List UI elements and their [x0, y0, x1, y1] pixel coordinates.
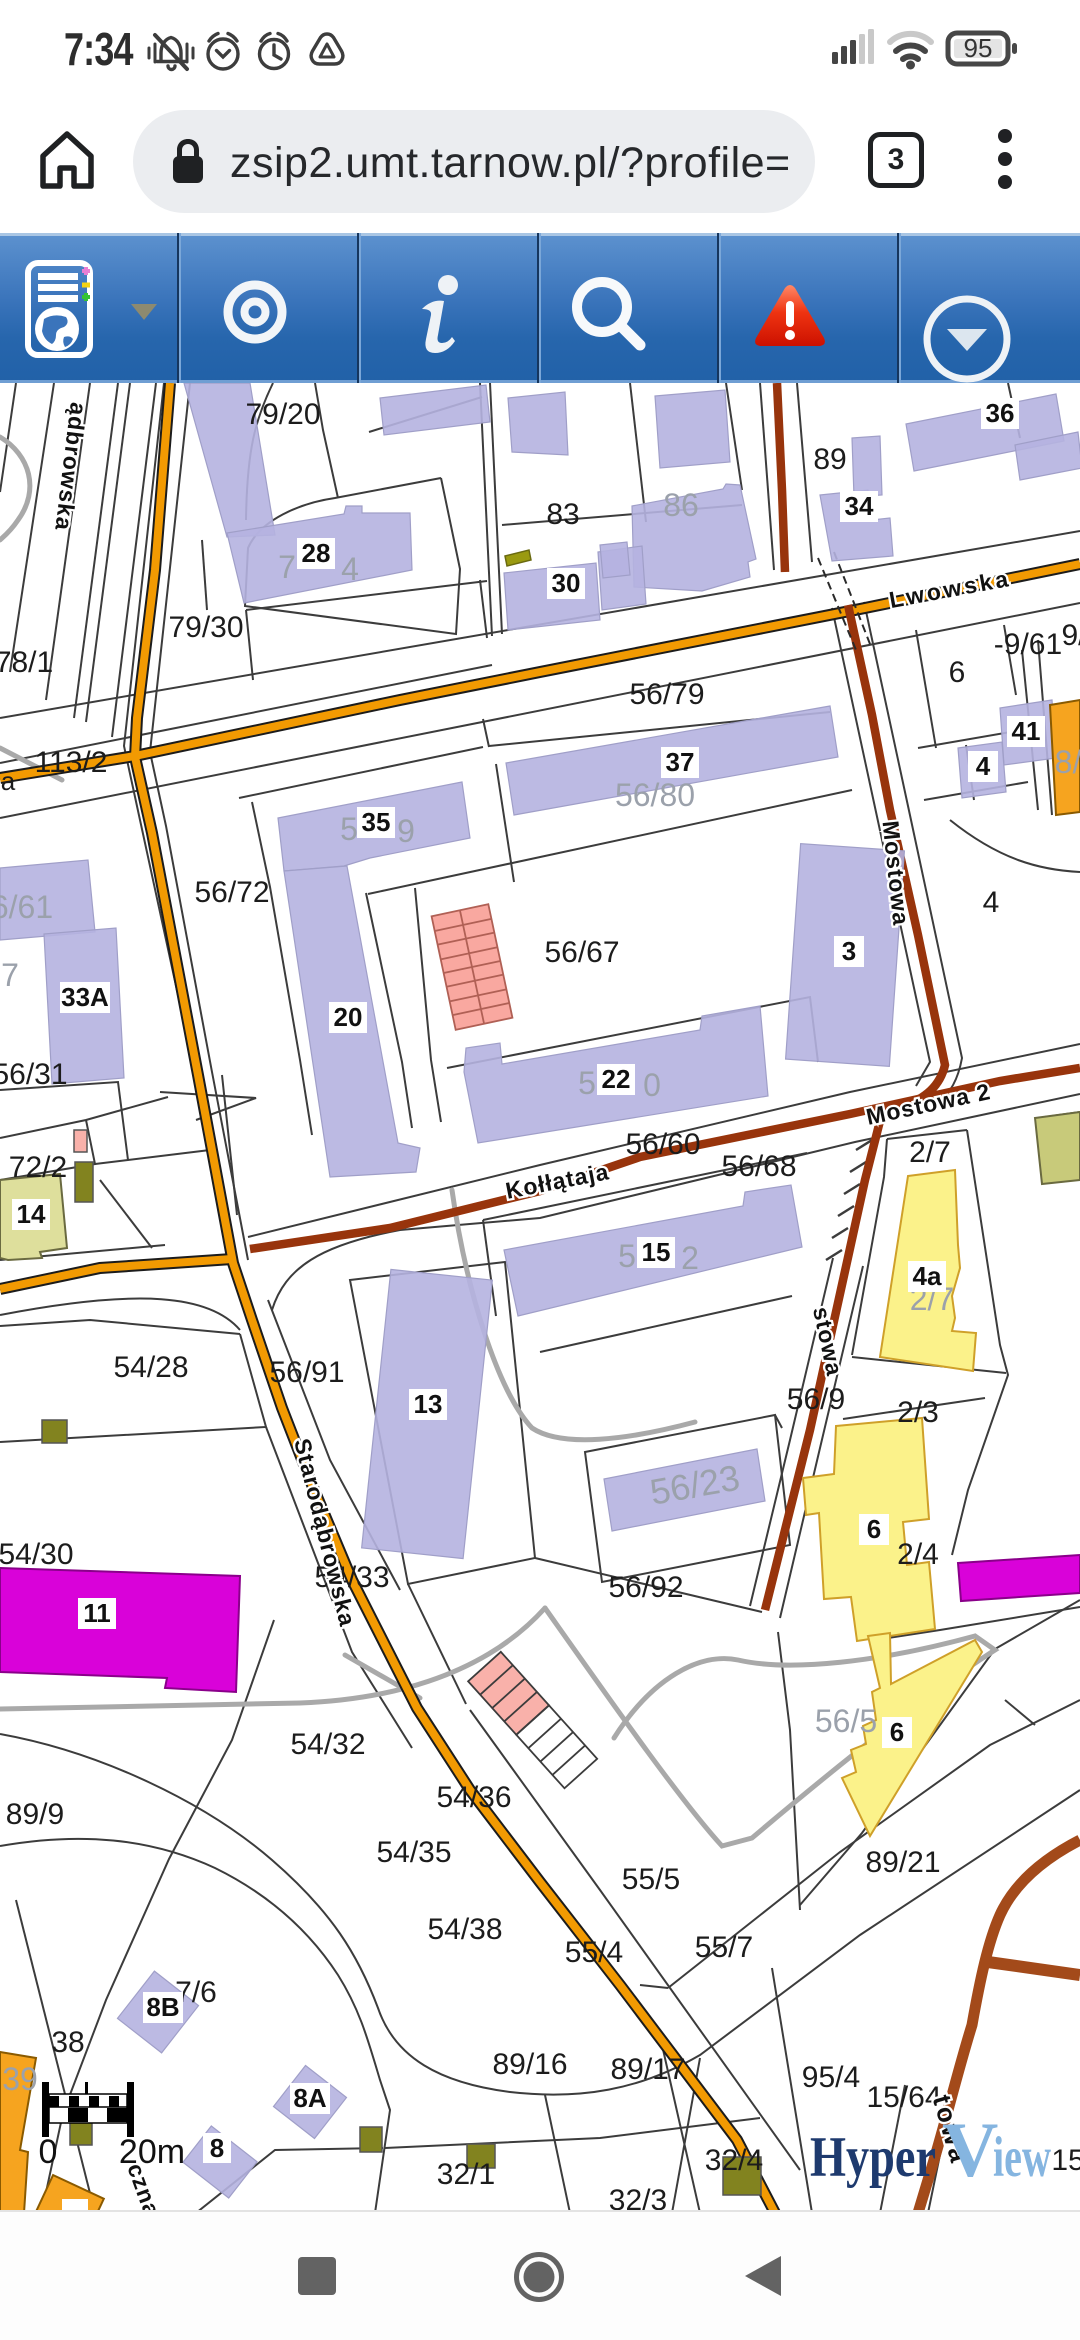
svg-text:56/91: 56/91: [269, 1356, 344, 1389]
svg-text:5: 5: [578, 1065, 596, 1101]
svg-text:37: 37: [666, 747, 695, 777]
svg-text:4: 4: [983, 886, 1000, 919]
svg-text:78/1: 78/1: [0, 646, 53, 679]
svg-text:56/9: 56/9: [787, 1383, 845, 1416]
svg-text:32/3: 32/3: [609, 2184, 667, 2210]
svg-text:4: 4: [341, 551, 359, 587]
svg-text:89/17: 89/17: [610, 2053, 685, 2086]
svg-text:V: V: [942, 2106, 998, 2193]
svg-text:22: 22: [602, 1064, 631, 1094]
svg-text:36: 36: [986, 398, 1015, 428]
svg-text:28: 28: [302, 538, 331, 568]
svg-text:54/30: 54/30: [0, 1538, 74, 1571]
svg-text:4: 4: [976, 751, 991, 781]
svg-text:56/60: 56/60: [625, 1128, 700, 1161]
svg-text:2/3: 2/3: [897, 1396, 939, 1429]
svg-text:0: 0: [39, 2133, 58, 2171]
svg-text:95: 95: [964, 33, 993, 63]
svg-text:33A: 33A: [61, 982, 109, 1012]
svg-text:6: 6: [949, 656, 966, 689]
svg-text:30: 30: [552, 568, 581, 598]
svg-text:56/92: 56/92: [608, 1571, 683, 1604]
svg-text:56/31: 56/31: [0, 1058, 68, 1091]
svg-text:2/7: 2/7: [909, 1136, 951, 1169]
svg-text:54/38: 54/38: [427, 1913, 502, 1946]
svg-text:39: 39: [2, 2061, 38, 2097]
svg-text:56/5: 56/5: [815, 1703, 877, 1739]
svg-text:55/7: 55/7: [695, 1931, 753, 1964]
svg-text:8/: 8/: [1055, 744, 1080, 780]
svg-text:41: 41: [1012, 716, 1041, 746]
svg-text:iew: iew: [993, 2126, 1051, 2189]
svg-text:113/2: 113/2: [35, 746, 108, 779]
svg-text:2: 2: [681, 1240, 699, 1276]
svg-text:54/32: 54/32: [290, 1728, 365, 1761]
svg-text:32/1: 32/1: [437, 2158, 495, 2191]
svg-text:15: 15: [642, 1237, 671, 1267]
svg-text:89: 89: [813, 443, 846, 476]
svg-text:9: 9: [397, 813, 415, 849]
svg-text:95/4: 95/4: [802, 2061, 860, 2094]
svg-text:8A: 8A: [293, 2083, 326, 2113]
svg-text:13: 13: [414, 1389, 443, 1419]
svg-text:5: 5: [618, 1238, 636, 1274]
svg-text:6: 6: [890, 1717, 904, 1747]
svg-text:56/72: 56/72: [194, 876, 269, 909]
svg-text:54/28: 54/28: [113, 1351, 188, 1384]
svg-text:56/68: 56/68: [721, 1150, 796, 1183]
svg-text:89/16: 89/16: [492, 2048, 567, 2081]
svg-text:5: 5: [340, 811, 358, 847]
svg-text:3: 3: [842, 936, 856, 966]
svg-text:4a: 4a: [913, 1261, 942, 1291]
svg-text:54/35: 54/35: [376, 1836, 451, 1869]
svg-text:7: 7: [278, 549, 296, 585]
svg-text:56/80: 56/80: [615, 777, 695, 813]
svg-text:34: 34: [845, 491, 874, 521]
svg-text:6/61: 6/61: [0, 889, 53, 925]
svg-text:32/4: 32/4: [705, 2144, 763, 2177]
svg-text:7: 7: [1, 957, 19, 993]
svg-text:20: 20: [334, 1002, 363, 1032]
svg-text:89/9: 89/9: [6, 1798, 64, 1831]
svg-text:8: 8: [210, 2133, 224, 2163]
svg-text:6: 6: [867, 1514, 881, 1544]
svg-text:83: 83: [546, 498, 579, 531]
svg-text:55/4: 55/4: [565, 1936, 623, 1969]
svg-text:56/67: 56/67: [544, 936, 619, 969]
svg-text:0: 0: [643, 1067, 661, 1103]
svg-text:14: 14: [17, 1199, 46, 1229]
svg-text:-9/61: -9/61: [994, 628, 1062, 661]
svg-text:38: 38: [51, 2026, 84, 2059]
svg-text:15: 15: [1051, 2144, 1080, 2177]
svg-text:79/30: 79/30: [168, 611, 243, 644]
svg-text:2/4: 2/4: [897, 1538, 939, 1571]
svg-text:79/20: 79/20: [245, 398, 320, 431]
svg-text:72/2: 72/2: [9, 1151, 67, 1184]
svg-text:86: 86: [663, 487, 699, 523]
svg-text:9/: 9/: [1061, 619, 1080, 652]
svg-text:a: a: [1, 766, 16, 796]
svg-text:89/21: 89/21: [865, 1846, 940, 1879]
svg-text:55/5: 55/5: [622, 1863, 680, 1896]
svg-text:11: 11: [83, 1598, 111, 1628]
svg-text:54/36: 54/36: [436, 1781, 511, 1814]
svg-text:20m: 20m: [119, 2133, 185, 2171]
svg-text:56/79: 56/79: [629, 678, 704, 711]
svg-text:Hyper: Hyper: [810, 2126, 936, 2189]
svg-text:35: 35: [362, 807, 391, 837]
svg-text:8B: 8B: [146, 1992, 179, 2022]
